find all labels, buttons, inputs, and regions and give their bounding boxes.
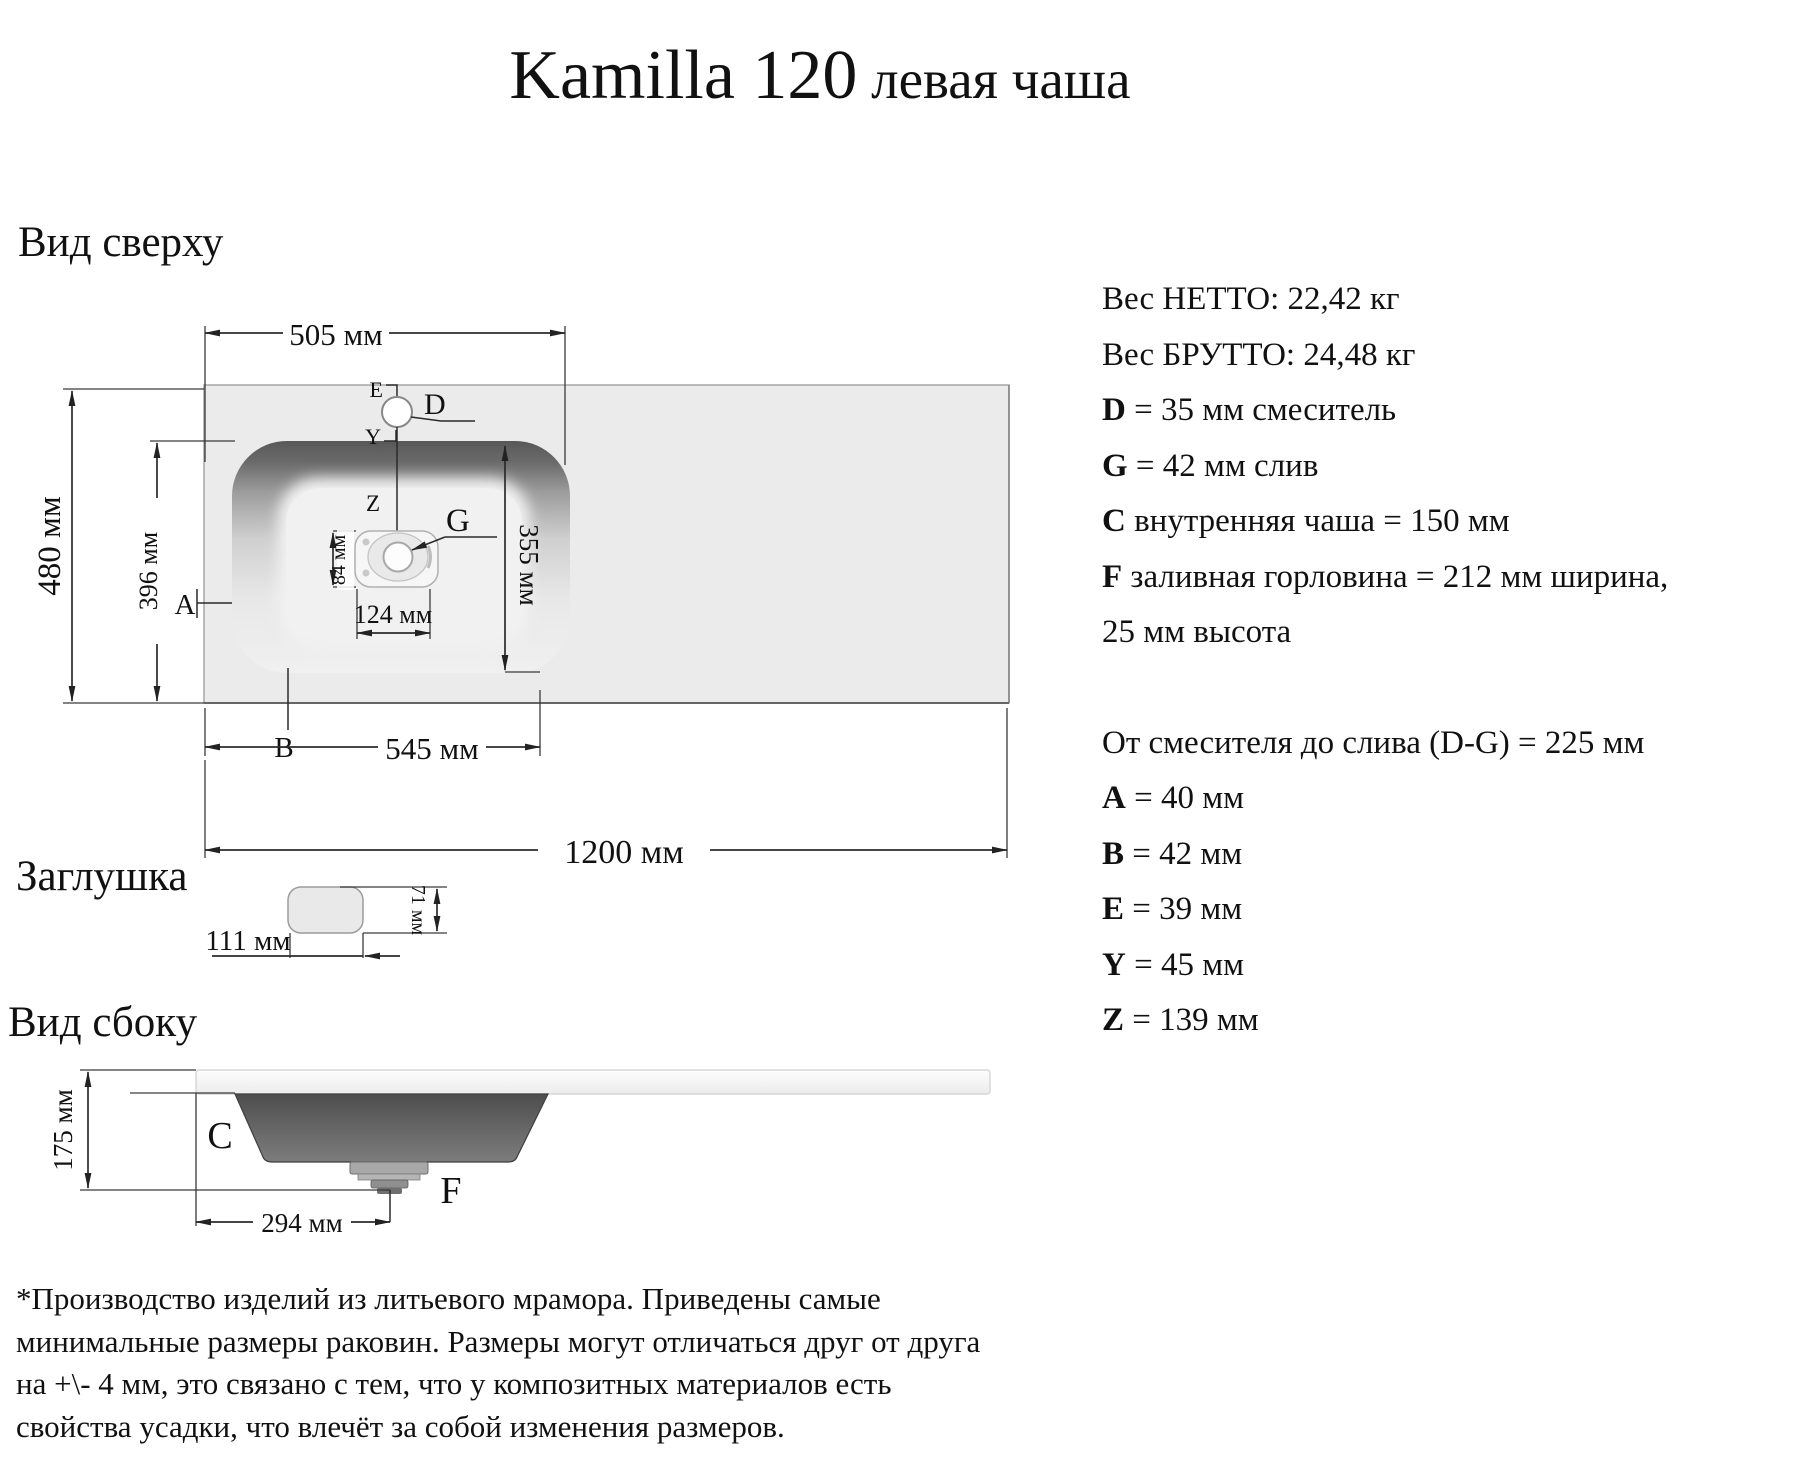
spec-c-inner-bowl: C внутренняя чаша = 150 мм bbox=[1102, 494, 1792, 550]
spec-sheet: Kamilla 120 левая чаша Вид сверху Заглуш… bbox=[0, 0, 1800, 1461]
label-g: G bbox=[446, 503, 470, 539]
production-footnote: *Производство изделий из литьевого мрамо… bbox=[16, 1278, 996, 1448]
spec-y: Y = 45 мм bbox=[1102, 938, 1792, 994]
spec-f-filler-neck: F заливная горловина = 212 мм ширина, bbox=[1102, 550, 1792, 606]
footnote-line: свойства усадки, что влечёт за собой изм… bbox=[16, 1406, 996, 1449]
footnote-line: *Производство изделий из литьевого мрамо… bbox=[16, 1278, 996, 1321]
spec-b: B = 42 мм bbox=[1102, 827, 1792, 883]
label-d: D bbox=[424, 388, 446, 421]
plug-drawing: 71 мм 111 мм bbox=[150, 870, 490, 980]
label-z: Z bbox=[366, 491, 380, 516]
label-e: E bbox=[370, 377, 383, 402]
label-c: C bbox=[207, 1115, 232, 1157]
spec-z: Z = 139 мм bbox=[1102, 993, 1792, 1049]
side-view-drawing: C F 175 мм 294 мм bbox=[30, 1050, 1030, 1245]
plug-width-label: 111 мм bbox=[205, 925, 290, 957]
spec-g-drain: G = 42 мм слив bbox=[1102, 439, 1792, 495]
dim-84-label: 84 мм bbox=[328, 535, 350, 586]
spec-a: A = 40 мм bbox=[1102, 771, 1792, 827]
dim-355-label: 355 мм bbox=[514, 524, 544, 605]
faucet-hole bbox=[382, 397, 412, 427]
spec-d-mixer: D = 35 мм смеситель bbox=[1102, 383, 1792, 439]
plug-height-label: 71 мм bbox=[407, 885, 429, 936]
footnote-line: на +\- 4 мм, это связано с тем, что у ко… bbox=[16, 1363, 996, 1406]
countertop-side bbox=[196, 1070, 990, 1094]
top-view-drawing: E Y D Z G bbox=[0, 250, 1060, 880]
drain-stack bbox=[350, 1162, 428, 1194]
dim-c: C bbox=[130, 1093, 235, 1226]
dim-175-label: 175 мм bbox=[48, 1089, 78, 1170]
dim-480-label: 480 мм bbox=[32, 496, 68, 596]
dim-1200: 1200 мм bbox=[205, 708, 1007, 871]
spec-e: E = 39 мм bbox=[1102, 882, 1792, 938]
dim-294-label: 294 мм bbox=[261, 1208, 342, 1238]
dim-480: 480 мм bbox=[32, 389, 204, 703]
dim-84: 84 мм bbox=[328, 530, 356, 590]
dim-294: 294 мм bbox=[196, 1190, 390, 1238]
dim-545-label: 545 мм bbox=[385, 731, 478, 766]
dim-124-label: 124 мм bbox=[354, 600, 432, 629]
label-y: Y bbox=[365, 424, 381, 449]
spec-gross-weight: Вес БРУТТО: 24,48 кг bbox=[1102, 328, 1792, 384]
section-heading-side-view: Вид сбоку bbox=[8, 998, 197, 1047]
spec-net-weight: Вес НЕТТО: 22,42 кг bbox=[1102, 272, 1792, 328]
label-b: B bbox=[274, 732, 293, 764]
spec-f-height: 25 мм высота bbox=[1102, 605, 1792, 661]
dim-505-label: 505 мм bbox=[289, 317, 382, 352]
drain-assembly bbox=[355, 531, 438, 587]
spec-dg-distance: От смесителя до слива (D-G) = 225 мм bbox=[1102, 716, 1792, 772]
footnote-line: минимальные размеры раковин. Размеры мог… bbox=[16, 1321, 996, 1364]
spec-list: Вес НЕТТО: 22,42 кг Вес БРУТТО: 24,48 кг… bbox=[1102, 272, 1792, 1049]
dim-1200-label: 1200 мм bbox=[564, 834, 684, 871]
product-name: Kamilla 120 bbox=[509, 37, 857, 114]
dim-396-label: 396 мм bbox=[134, 532, 163, 610]
page-title: Kamilla 120 левая чаша bbox=[0, 36, 1640, 116]
plug-shape bbox=[288, 887, 363, 933]
label-a: A bbox=[175, 589, 196, 621]
bowl-underside bbox=[235, 1094, 548, 1162]
product-variant: левая чаша bbox=[857, 49, 1130, 110]
drain-hole bbox=[384, 543, 413, 572]
label-f: F bbox=[440, 1170, 461, 1212]
